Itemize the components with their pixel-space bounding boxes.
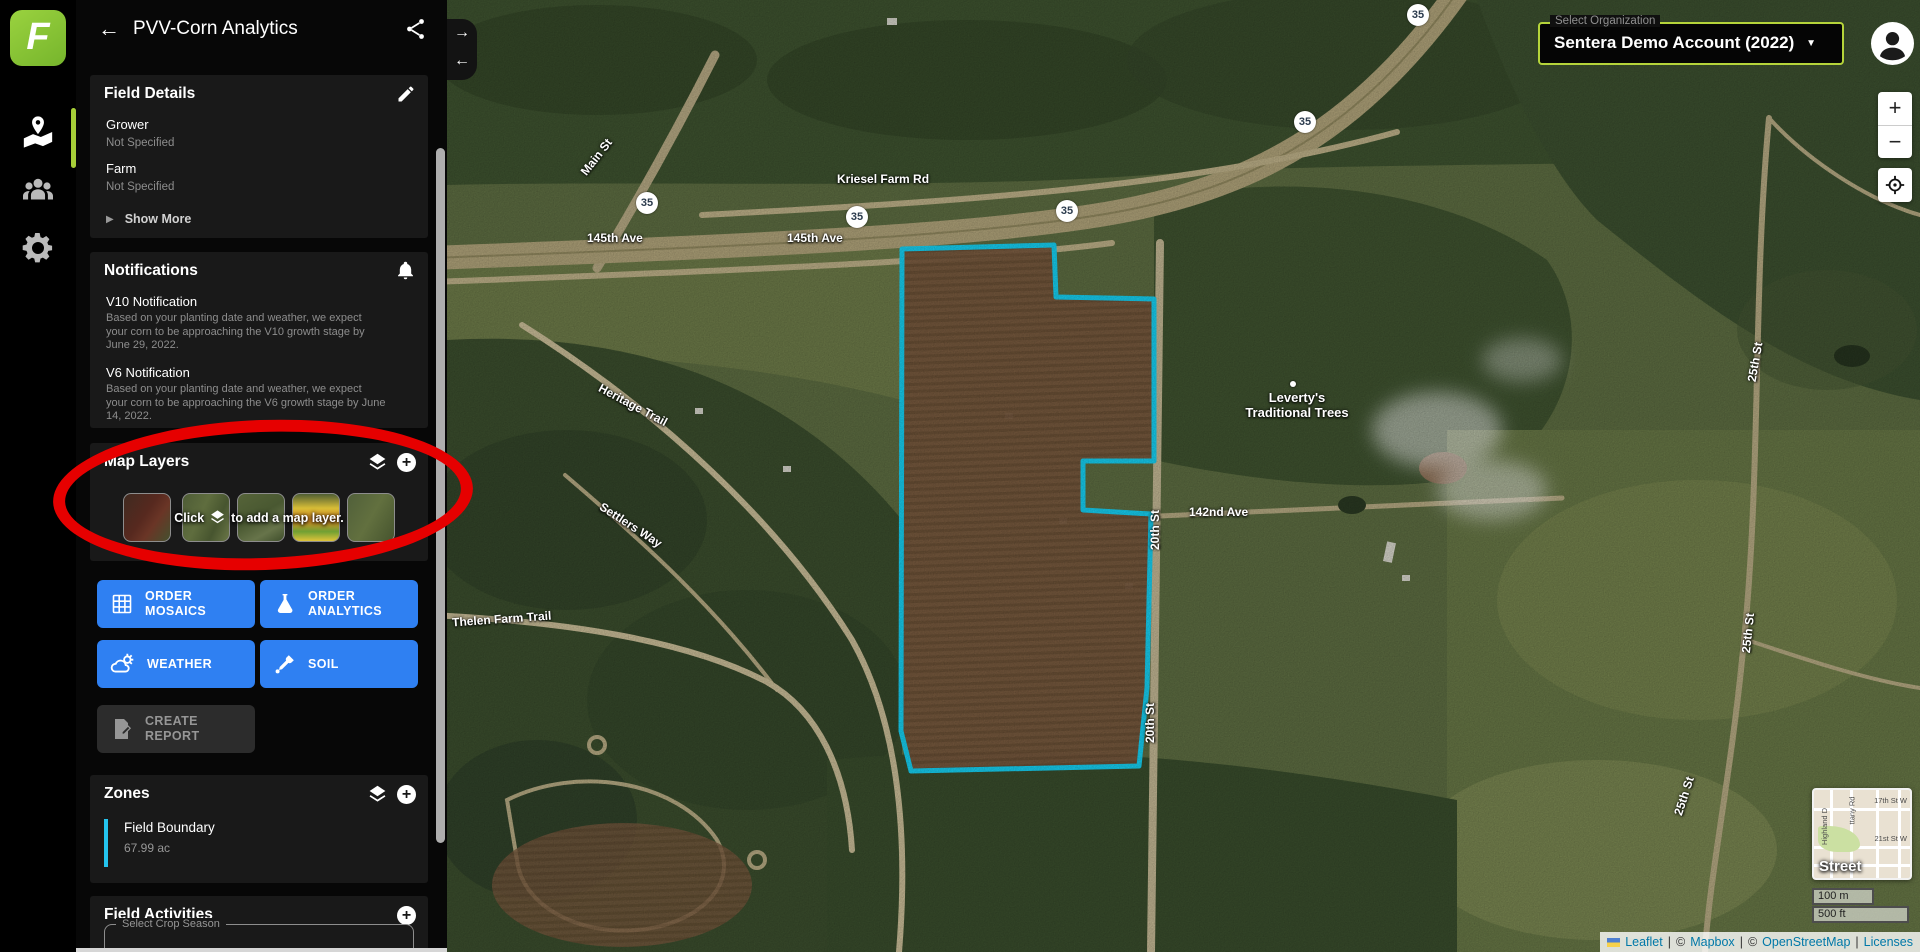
back-arrow-icon[interactable]: ← [98, 16, 120, 42]
triangle-right-icon: ▶ [106, 214, 114, 225]
rail-item-fields[interactable] [18, 112, 58, 152]
layers-icon [367, 784, 388, 805]
poi-line2: Traditional Trees [1217, 405, 1377, 420]
minimap-label-21st: 21st St W [1874, 834, 1907, 843]
sentera-logo[interactable]: F [10, 10, 66, 66]
bell-icon [395, 260, 416, 281]
crop-season-label: Select Crop Season [116, 918, 226, 930]
satellite-imagery [447, 0, 1920, 952]
sidebar-collapse-tab: → ← [447, 19, 477, 80]
shovel-icon [273, 652, 297, 676]
soil-label: SOIL [308, 657, 400, 672]
sidebar-scrollbar[interactable] [436, 148, 445, 843]
notifications-title: Notifications [104, 262, 198, 280]
add-zone-button[interactable]: + [397, 785, 416, 804]
zones-title: Zones [104, 785, 150, 803]
licenses-link[interactable]: Licenses [1864, 935, 1913, 949]
expand-sidebar-arrow[interactable]: → [447, 19, 477, 47]
order-mosaics-button[interactable]: ORDER MOSAICS [97, 580, 255, 628]
basemap-switcher-label: Street [1819, 858, 1862, 875]
report-document-icon [110, 717, 134, 741]
pencil-icon [396, 84, 416, 104]
mapbox-link[interactable]: Mapbox [1690, 935, 1734, 949]
zoom-out-button[interactable]: − [1878, 125, 1912, 158]
poi-line1: Leverty's [1217, 390, 1377, 405]
notifications-card: Notifications V10 Notification Based on … [90, 252, 428, 428]
app-root: Main St Kriesel Farm Rd 145th Ave 145th … [0, 0, 1920, 952]
field-activities-card: Field Activities + Select Crop Season [90, 896, 428, 952]
page-title: PVV-Corn Analytics [133, 18, 298, 40]
zones-card: Zones + Field Boundary 67.99 ac [90, 775, 428, 883]
zones-visibility-button[interactable] [367, 784, 388, 805]
copyright-symbol: © [1676, 935, 1685, 949]
openstreetmap-link[interactable]: OpenStreetMap [1762, 935, 1850, 949]
highway-shield-35: 35 [1056, 200, 1078, 222]
zoom-in-button[interactable]: + [1878, 92, 1912, 125]
gear-icon [20, 230, 56, 266]
person-icon [1871, 22, 1914, 65]
layers-icon [367, 452, 388, 473]
minimap-label-highland: Highland D [1820, 808, 1829, 845]
highway-shield-35: 35 [636, 192, 658, 214]
soil-button[interactable]: SOIL [260, 640, 418, 688]
attribution-separator: | [1668, 935, 1671, 949]
hint-click-word: Click [174, 511, 204, 525]
minimap-label-17th: 17th St W [1874, 796, 1907, 805]
create-report-button[interactable]: CREATE REPORT [97, 705, 255, 753]
profile-button[interactable] [1871, 22, 1914, 65]
share-icon [404, 17, 428, 41]
chevron-down-icon[interactable]: ▼ [1806, 38, 1816, 49]
field-sidebar: ← PVV-Corn Analytics Field Details Growe… [76, 0, 447, 952]
attribution-separator: | [1855, 935, 1858, 949]
road-label-20th-st-1: 20th St [1148, 510, 1162, 550]
zone-item-name[interactable]: Field Boundary [124, 820, 215, 835]
organization-selector-value: Sentera Demo Account (2022) [1554, 33, 1794, 53]
share-button[interactable] [404, 17, 428, 41]
field-details-title: Field Details [104, 85, 195, 103]
road-label-kriesel-farm-rd: Kriesel Farm Rd [837, 172, 929, 186]
weather-button[interactable]: WEATHER [97, 640, 255, 688]
notification-item-title: V6 Notification [106, 365, 190, 380]
plus-icon: + [397, 906, 416, 925]
highway-shield-35: 35 [846, 206, 868, 228]
zone-item-area: 67.99 ac [124, 841, 170, 855]
notification-item-body: Based on your planting date and weather,… [106, 383, 386, 424]
map-layers-card: Map Layers + Click to add [90, 443, 428, 561]
plus-icon: + [397, 785, 416, 804]
scale-bar-metric: 100 m [1812, 888, 1874, 905]
show-more-toggle[interactable]: ▶ Show More [106, 212, 191, 226]
organization-selector-label: Select Organization [1550, 15, 1660, 27]
zone-color-bar [104, 819, 108, 867]
map-zoom-control: + − [1878, 92, 1912, 158]
layers-icon [209, 509, 226, 526]
road-label-145th-ave-1: 145th Ave [587, 231, 643, 245]
rail-item-settings[interactable] [18, 228, 58, 268]
flask-icon [273, 592, 297, 616]
scale-bar-imperial: 500 ft [1812, 906, 1909, 923]
show-more-label: Show More [125, 212, 192, 226]
poi-marker-dot [1290, 381, 1296, 387]
weather-cloud-sun-icon [110, 651, 136, 677]
road-label-20th-st-2: 20th St [1143, 703, 1157, 743]
create-report-label: CREATE REPORT [145, 714, 237, 744]
crosshair-icon [1884, 174, 1906, 196]
order-analytics-button[interactable]: ORDER ANALYTICS [260, 580, 418, 628]
notification-item-body: Based on your planting date and weather,… [106, 312, 386, 353]
farm-value: Not Specified [106, 181, 174, 193]
leaflet-link[interactable]: Leaflet [1625, 935, 1663, 949]
add-field-activity-button[interactable]: + [397, 906, 416, 925]
layer-visibility-button[interactable] [367, 452, 388, 473]
mosaic-grid-icon [110, 592, 134, 616]
notification-item-title: V10 Notification [106, 294, 197, 309]
road-label-145th-ave-2: 145th Ave [787, 231, 843, 245]
highway-shield-35: 35 [1294, 111, 1316, 133]
sidebar-hscrollbar[interactable] [76, 948, 447, 952]
road-label-142nd-ave: 142nd Ave [1189, 505, 1248, 519]
locate-button[interactable] [1878, 168, 1912, 202]
edit-field-button[interactable] [396, 84, 416, 109]
grower-value: Not Specified [106, 137, 174, 149]
copyright-symbol: © [1748, 935, 1757, 949]
rail-active-indicator [71, 108, 76, 168]
plus-icon: + [397, 453, 416, 472]
add-layer-hint: Click to add a map layer. [90, 509, 428, 526]
highway-shield-35: 35 [1407, 4, 1429, 26]
ukraine-flag-icon [1607, 938, 1620, 947]
notification-settings-button[interactable] [395, 260, 416, 286]
grower-label: Grower [106, 117, 149, 132]
collapse-sidebar-arrow[interactable]: ← [447, 47, 477, 75]
order-mosaics-label: ORDER MOSAICS [145, 589, 237, 619]
map-layers-title: Map Layers [104, 453, 189, 471]
minimap-label-brittany: ttany Rd [1847, 797, 1856, 825]
farm-label: Farm [106, 161, 136, 176]
map-attribution: Leaflet | © Mapbox | © OpenStreetMap | L… [1600, 932, 1920, 952]
order-analytics-label: ORDER ANALYTICS [308, 589, 400, 619]
add-map-layer-button[interactable]: + [397, 453, 416, 472]
people-icon [20, 174, 56, 210]
attribution-separator: | [1740, 935, 1743, 949]
app-rail: F [0, 0, 76, 952]
rail-item-team[interactable] [18, 172, 58, 212]
weather-label: WEATHER [147, 657, 239, 672]
fields-map-pin-icon [21, 115, 55, 149]
map-canvas[interactable]: Main St Kriesel Farm Rd 145th Ave 145th … [447, 0, 1920, 952]
hint-rest-text: to add a map layer. [231, 511, 344, 525]
field-details-card: Field Details Grower Not Specified Farm … [90, 75, 428, 238]
basemap-switcher-street[interactable]: 17th St W 21st St W Highland D ttany Rd … [1812, 788, 1912, 880]
poi-label-levertys: Leverty's Traditional Trees [1217, 390, 1377, 420]
organization-selector[interactable]: Select Organization Sentera Demo Account… [1538, 22, 1844, 65]
